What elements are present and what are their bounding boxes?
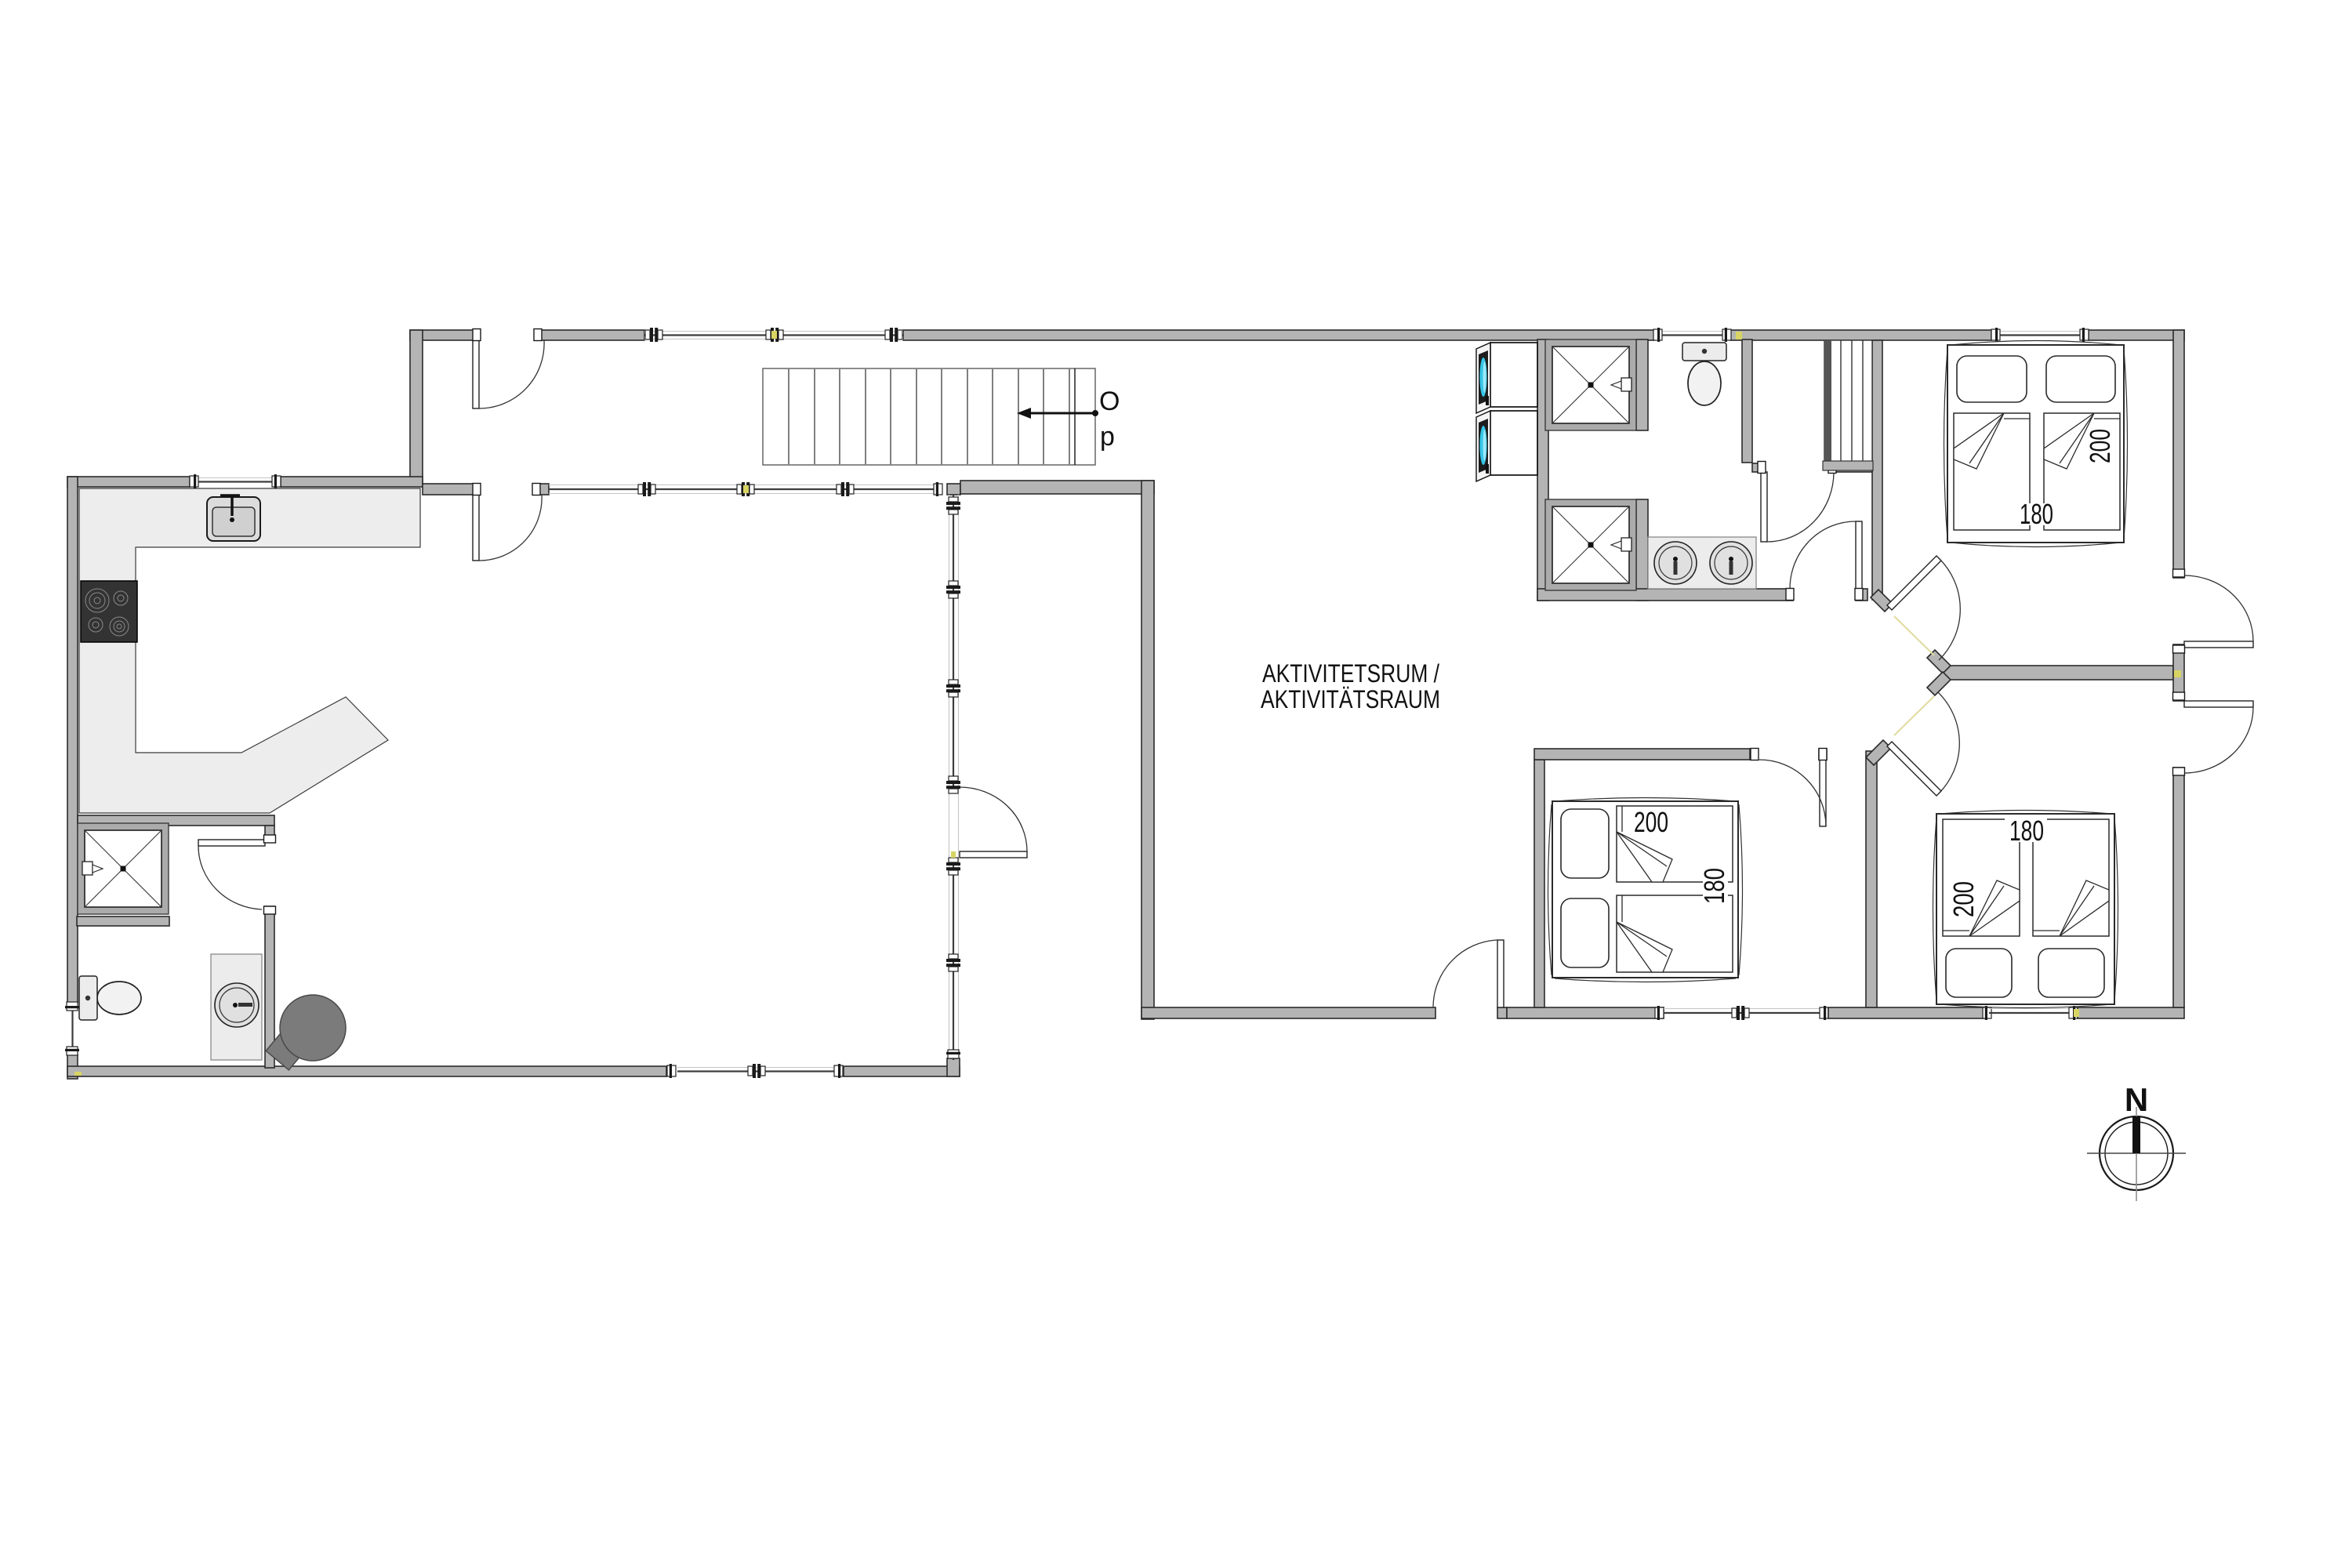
svg-text:N: N	[2125, 1081, 2148, 1118]
svg-text:180: 180	[1698, 868, 1730, 904]
svg-text:180: 180	[2020, 498, 2053, 530]
svg-text:AKTIVITÄTSRAUM: AKTIVITÄTSRAUM	[1261, 685, 1440, 713]
svg-text:180: 180	[2009, 815, 2044, 847]
svg-text:200: 200	[1634, 806, 1668, 838]
svg-text:p: p	[1100, 422, 1115, 452]
svg-text:200: 200	[2084, 429, 2116, 463]
svg-text:AKTIVITETSRUM /: AKTIVITETSRUM /	[1262, 659, 1439, 688]
svg-text:200: 200	[1947, 881, 1980, 917]
svg-text:O: O	[1099, 387, 1120, 416]
